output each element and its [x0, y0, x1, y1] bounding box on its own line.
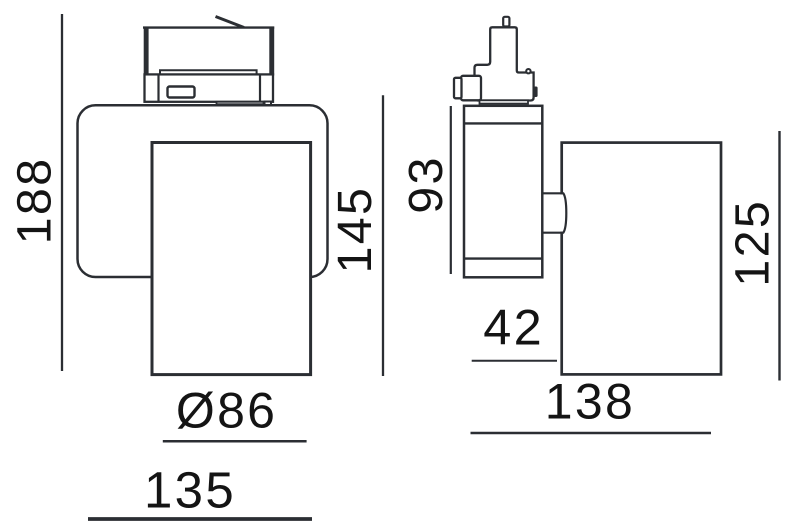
- svg-text:138: 138: [545, 373, 635, 429]
- svg-text:125: 125: [725, 199, 779, 287]
- svg-text:Ø86: Ø86: [176, 383, 277, 439]
- svg-text:42: 42: [483, 299, 544, 356]
- svg-text:188: 188: [7, 157, 61, 245]
- svg-text:93: 93: [399, 155, 453, 214]
- svg-text:145: 145: [328, 186, 382, 274]
- svg-text:135: 135: [144, 462, 236, 519]
